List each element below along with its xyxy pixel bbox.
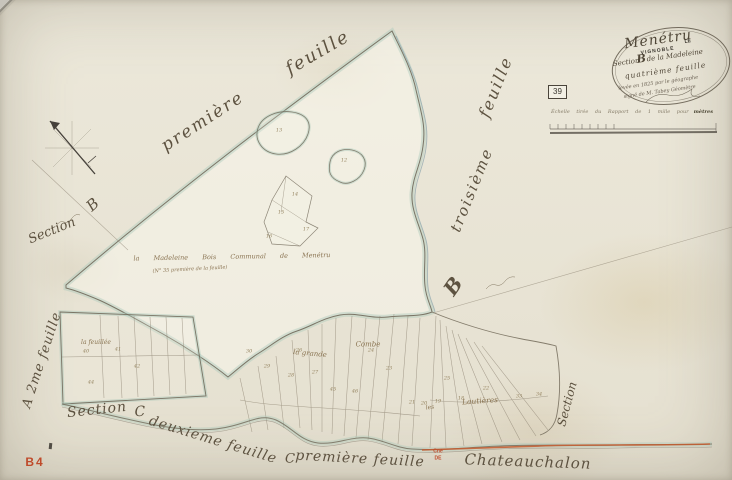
parcel-number: 28 <box>288 374 294 379</box>
parcel-number: 14 <box>292 193 298 198</box>
parcel-number: 45 <box>330 388 336 393</box>
parcel-number: 41 <box>115 348 121 353</box>
parcel-number: 40 <box>83 350 89 355</box>
cadastral-map-sheet: feuille première feuille troisième B B S… <box>0 0 732 480</box>
parcel-number: 34 <box>536 393 542 398</box>
sheet-ref-red: B4 <box>25 456 44 468</box>
parcel-number: 26 <box>296 349 302 354</box>
parcel-number: 25 <box>444 377 450 382</box>
parcel-number: 13 <box>276 129 282 134</box>
parcel-number: 22 <box>483 387 489 392</box>
cartouche-section-letter: B <box>636 52 647 66</box>
parcel-number: 12 <box>341 159 347 164</box>
parcel-number: 19 <box>435 400 441 405</box>
parcel-number: 15 <box>278 211 284 216</box>
parcel-number: 20 <box>421 402 427 407</box>
scale-caption-text: Échelle tirée du Rapport de 1 mille pour <box>551 109 689 115</box>
parcel-number: 29 <box>264 365 270 370</box>
parcel-number: 17 <box>303 228 309 233</box>
parcel-number: 46 <box>352 390 358 395</box>
parcel-number: 16 <box>266 235 272 240</box>
parcel-number: 44 <box>88 381 94 386</box>
parcel-number: 27 <box>312 371 318 376</box>
parcel-number: 33 <box>516 395 522 400</box>
parcel-number: 24 <box>368 349 374 354</box>
cartouche: Menétru LE VIGNOBLE Section B de la Made… <box>605 16 732 118</box>
sheet-number-box: 39 <box>548 85 567 99</box>
parcel-number: 23 <box>386 367 392 372</box>
parcel-number: 30 <box>246 350 252 355</box>
parcel-number: 18 <box>458 397 464 402</box>
scale-caption: Échelle tirée du Rapport de 1 mille pour… <box>551 109 713 115</box>
parcel-number: 42 <box>134 365 140 370</box>
scale-caption-end: mètres <box>694 109 713 115</box>
cartouche-stamp-le: LE <box>684 38 691 45</box>
parcel-number: 21 <box>409 401 415 406</box>
